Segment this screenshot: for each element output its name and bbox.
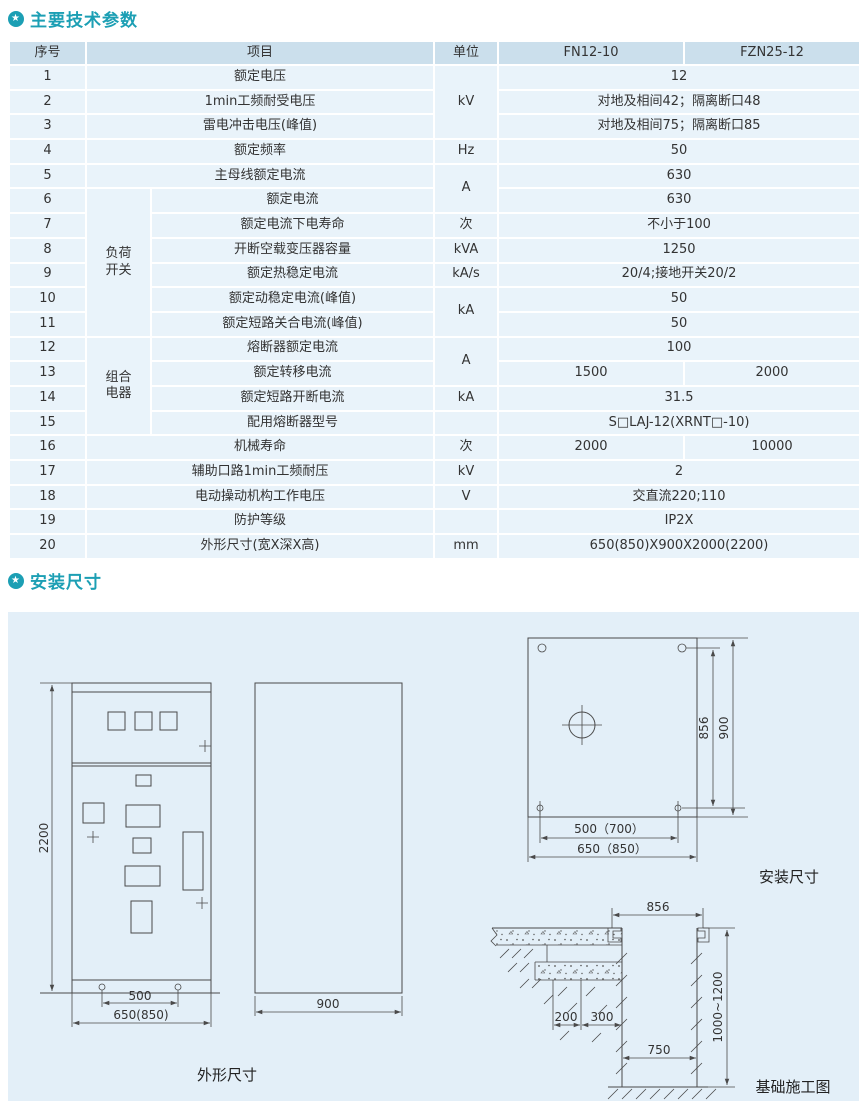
star-icon: ★: [8, 11, 24, 27]
item-cell: 额定热稳定电流: [151, 263, 434, 288]
value-cell: S□LAJ-12(XRNT□-10): [498, 411, 860, 436]
foundation-caption: 基础施工图: [755, 1078, 830, 1096]
row-number-cell: 6: [9, 188, 86, 213]
unit-cell: A: [434, 164, 498, 213]
install-title-text: 安装尺寸: [30, 568, 102, 593]
value-cell: 2: [498, 460, 860, 485]
row-number-cell: 13: [9, 361, 86, 386]
row-number-cell: 9: [9, 263, 86, 288]
value-cell-fn: 2000: [498, 435, 684, 460]
header-no: 序号: [9, 41, 86, 65]
row-number-cell: 16: [9, 435, 86, 460]
value-cell: 630: [498, 164, 860, 189]
row-number-cell: 11: [9, 312, 86, 337]
value-cell: 50: [498, 312, 860, 337]
item-cell: 电动操动机构工作电压: [86, 485, 434, 510]
foundation-b-dim: 300: [591, 1010, 614, 1024]
item-cell: 机械寿命: [86, 435, 434, 460]
drawings-panel: 2200 500 650(850) 900 外形尺寸 856: [8, 612, 859, 1101]
item-cell: 开断空载变压器容量: [151, 238, 434, 263]
table-row: 18 电动操动机构工作电压 V 交直流220;110: [9, 485, 860, 510]
group-label-line: 电器: [89, 386, 148, 402]
install-section-title: ★ 安装尺寸: [8, 568, 102, 593]
unit-cell: kV: [434, 460, 498, 485]
unit-cell: kVA: [434, 238, 498, 263]
table-row: 1 额定电压 kV 12: [9, 65, 860, 90]
row-number-cell: 2: [9, 90, 86, 115]
value-cell: 12: [498, 65, 860, 90]
header-unit: 单位: [434, 41, 498, 65]
table-row: 12 组合 电器 熔断器额定电流 A 100: [9, 337, 860, 362]
value-cell: 50: [498, 139, 860, 164]
foundation-depth-dim: 1000~1200: [711, 971, 725, 1042]
row-number-cell: 15: [9, 411, 86, 436]
item-cell: 辅助口路1min工频耐压: [86, 460, 434, 485]
item-cell: 额定动稳定电流(峰值): [151, 287, 434, 312]
group-cell-combo: 组合 电器: [86, 337, 151, 436]
install-caption: 安装尺寸: [759, 868, 819, 886]
outline-height-dim: 2200: [37, 823, 51, 854]
value-cell: 交直流220;110: [498, 485, 860, 510]
row-number-cell: 18: [9, 485, 86, 510]
header-model1: FN12-10: [498, 41, 684, 65]
unit-cell: 次: [434, 213, 498, 238]
unit-cell: Hz: [434, 139, 498, 164]
datasheet-page: { "colors": {"accent":"#1c9fb4","header_…: [0, 0, 867, 1101]
row-number-cell: 1: [9, 65, 86, 90]
row-number-cell: 12: [9, 337, 86, 362]
unit-cell: kV: [434, 65, 498, 139]
install-inner-dim: 856: [697, 717, 711, 740]
row-number-cell: 14: [9, 386, 86, 411]
cross-marker: [87, 740, 211, 909]
foundation-drawing: 856 200 300 750 1000~1200: [491, 900, 735, 1099]
star-icon: ★: [8, 573, 24, 589]
table-row: 20 外形尺寸(宽X深X高) mm 650(850)X900X2000(2200…: [9, 534, 860, 559]
install-width-dim: 650（850）: [577, 842, 647, 856]
value-cell: IP2X: [498, 509, 860, 534]
embedded-channel: [698, 928, 709, 942]
foundation-top-dim: 856: [647, 900, 670, 914]
unit-cell: 次: [434, 435, 498, 460]
row-number-cell: 4: [9, 139, 86, 164]
install-holes-dim: 500（700）: [574, 822, 644, 836]
row-number-cell: 19: [9, 509, 86, 534]
table-row: 4 额定频率 Hz 50: [9, 139, 860, 164]
value-cell-fzn: 2000: [684, 361, 860, 386]
table-row: 19 防护等级 IP2X: [9, 509, 860, 534]
row-number-cell: 5: [9, 164, 86, 189]
value-cell: 1250: [498, 238, 860, 263]
item-cell: 额定电压: [86, 65, 434, 90]
item-cell: 熔断器额定电流: [151, 337, 434, 362]
outline-side-view: 900: [255, 683, 402, 1016]
value-cell: 100: [498, 337, 860, 362]
value-cell: 630: [498, 188, 860, 213]
row-number-cell: 8: [9, 238, 86, 263]
unit-cell: mm: [434, 534, 498, 559]
item-cell: 额定转移电流: [151, 361, 434, 386]
item-cell: 雷电冲击电压(峰值): [86, 114, 434, 139]
item-cell: 1min工频耐受电压: [86, 90, 434, 115]
unit-cell: kA/s: [434, 263, 498, 288]
row-number-cell: 3: [9, 114, 86, 139]
install-outer-dim: 900: [717, 717, 731, 740]
outline-holes-dim: 500: [129, 989, 152, 1003]
table-row: 16 机械寿命 次 2000 10000: [9, 435, 860, 460]
row-number-cell: 10: [9, 287, 86, 312]
item-cell: 额定电流下电寿命: [151, 213, 434, 238]
value-cell: 31.5: [498, 386, 860, 411]
outline-front-view: 2200 500 650(850): [37, 683, 220, 1027]
row-number-cell: 17: [9, 460, 86, 485]
unit-cell: [434, 411, 498, 436]
value-cell: 50: [498, 287, 860, 312]
header-item: 项目: [86, 41, 434, 65]
outline-width-dim: 650(850): [113, 1008, 168, 1022]
unit-cell: kA: [434, 386, 498, 411]
table-row: 17 辅助口路1min工频耐压 kV 2: [9, 460, 860, 485]
foundation-pit-dim: 750: [648, 1043, 671, 1057]
item-cell: 防护等级: [86, 509, 434, 534]
value-cell: 650(850)X900X2000(2200): [498, 534, 860, 559]
group-label-line: 组合: [89, 370, 148, 386]
outline-depth-dim: 900: [317, 997, 340, 1011]
group-label-line: 负荷: [89, 246, 148, 262]
params-title-text: 主要技术参数: [30, 6, 138, 31]
value-cell: 20/4;接地开关20/2: [498, 263, 860, 288]
params-section-title: ★ 主要技术参数: [8, 6, 138, 31]
row-number-cell: 20: [9, 534, 86, 559]
item-cell: 额定电流: [151, 188, 434, 213]
row-number-cell: 7: [9, 213, 86, 238]
dimension-drawings: 2200 500 650(850) 900 外形尺寸 856: [8, 612, 859, 1101]
value-cell: 对地及相间75；隔离断口85: [498, 114, 860, 139]
value-cell: 不小于100: [498, 213, 860, 238]
outline-caption: 外形尺寸: [197, 1066, 257, 1084]
unit-cell: V: [434, 485, 498, 510]
header-model2: FZN25-12: [684, 41, 860, 65]
unit-cell: [434, 509, 498, 534]
group-label-line: 开关: [89, 263, 148, 279]
item-cell: 配用熔断器型号: [151, 411, 434, 436]
value-cell-fn: 1500: [498, 361, 684, 386]
unit-cell: kA: [434, 287, 498, 336]
item-cell: 额定短路开断电流: [151, 386, 434, 411]
value-cell-fzn: 10000: [684, 435, 860, 460]
item-cell: 主母线额定电流: [86, 164, 434, 189]
item-cell: 外形尺寸(宽X深X高): [86, 534, 434, 559]
value-cell: 对地及相间42；隔离断口48: [498, 90, 860, 115]
item-cell: 额定频率: [86, 139, 434, 164]
table-header-row: 序号 项目 单位 FN12-10 FZN25-12: [9, 41, 860, 65]
table-row: 5 主母线额定电流 A 630: [9, 164, 860, 189]
foundation-a-dim: 200: [555, 1010, 578, 1024]
item-cell: 额定短路关合电流(峰值): [151, 312, 434, 337]
unit-cell: A: [434, 337, 498, 386]
group-cell-load-switch: 负荷 开关: [86, 188, 151, 336]
params-table: 序号 项目 单位 FN12-10 FZN25-12 1 额定电压 kV 12 2…: [8, 40, 861, 560]
installation-plan-view: 856 900 500（700） 650（850）: [528, 638, 748, 862]
